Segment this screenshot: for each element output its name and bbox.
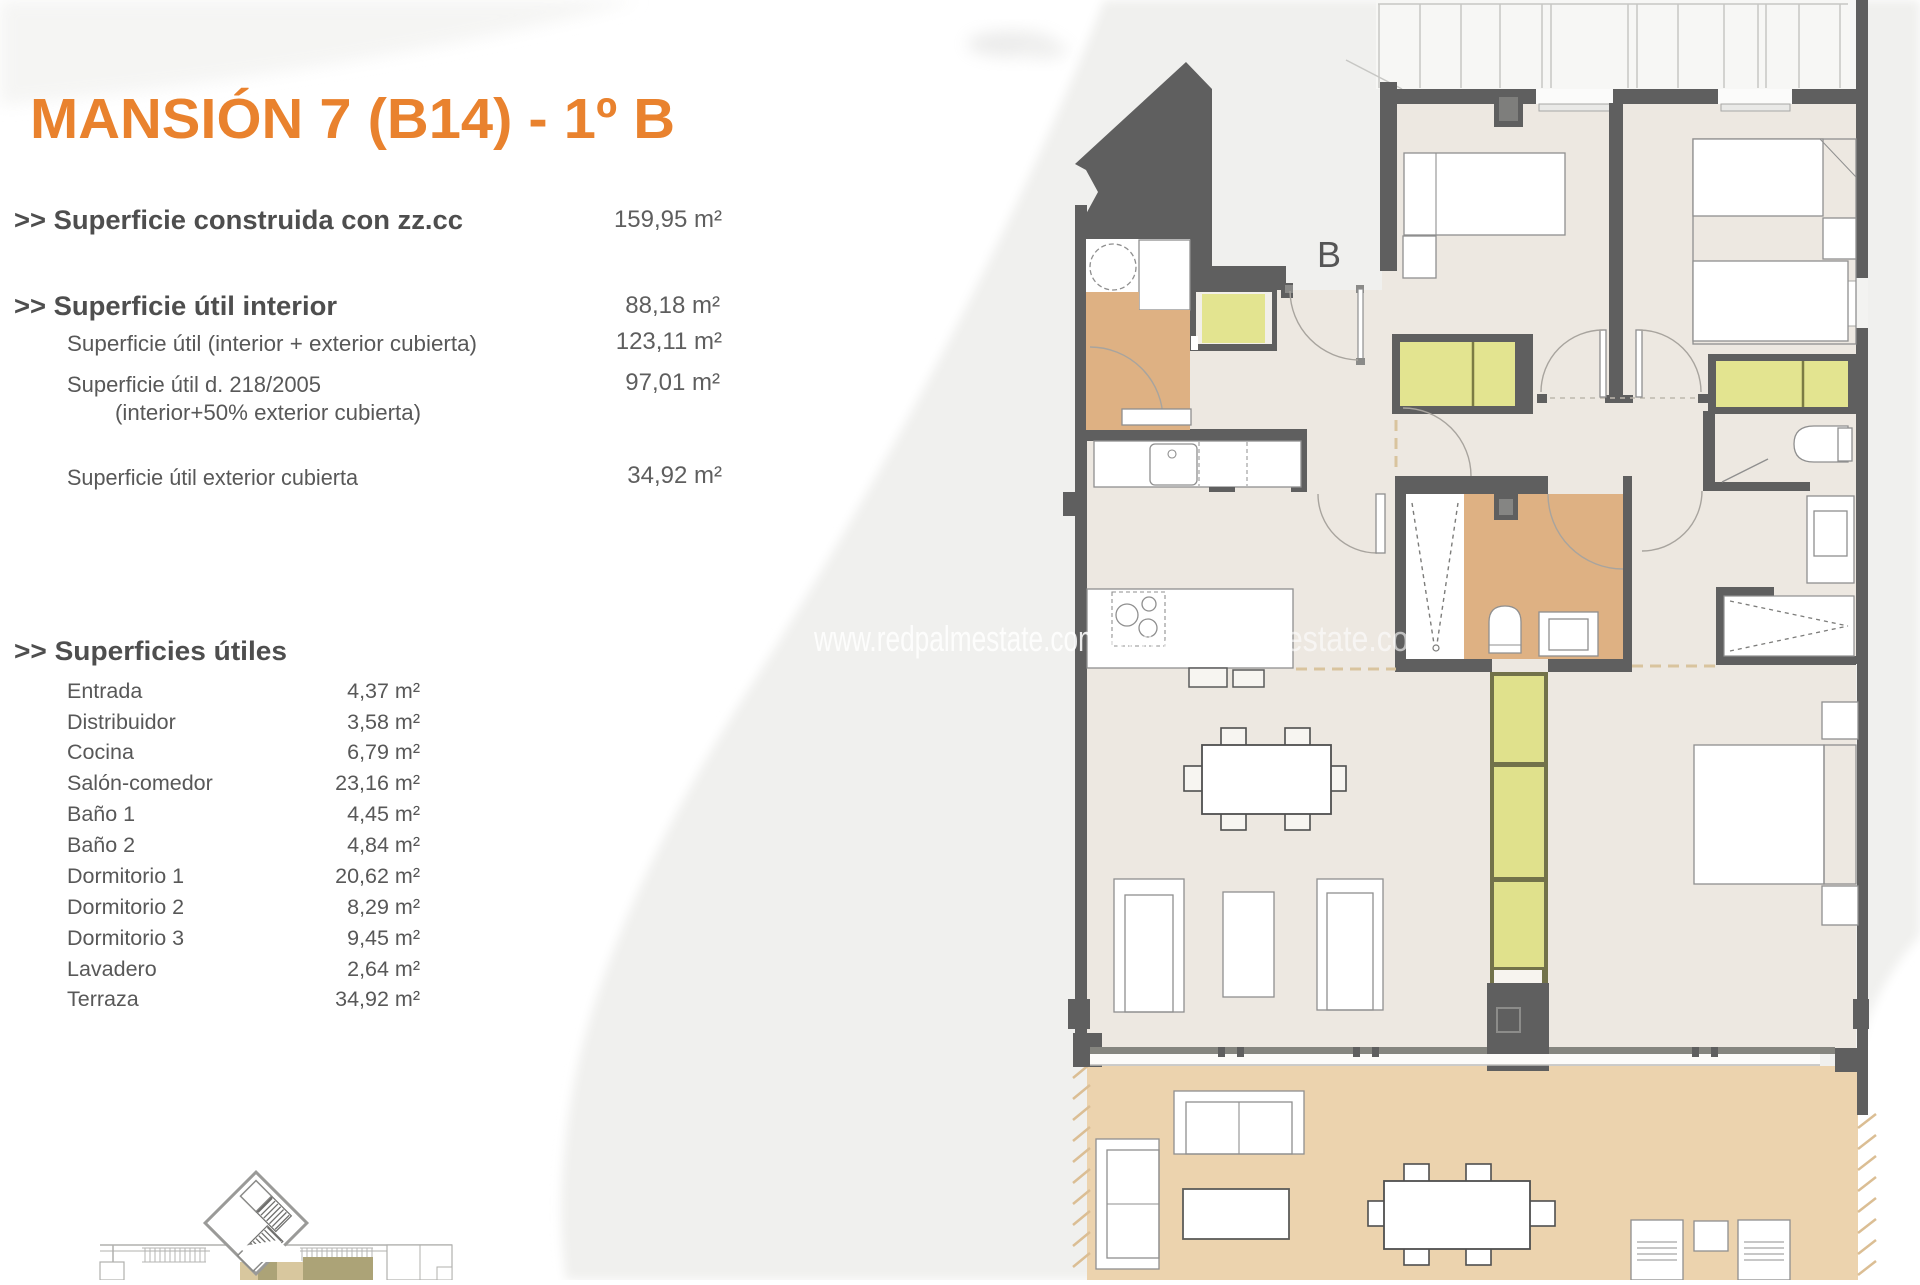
svg-text:123,11 m²: 123,11 m² bbox=[616, 328, 722, 355]
svg-text:Baño 2: Baño 2 bbox=[67, 833, 135, 857]
svg-text:Dormitorio 3: Dormitorio 3 bbox=[67, 926, 184, 950]
svg-text:9,45 m²: 9,45 m² bbox=[347, 926, 420, 950]
svg-text:Salón-comedor: Salón-comedor bbox=[67, 771, 213, 795]
svg-text:23,16 m²: 23,16 m² bbox=[335, 771, 420, 795]
svg-text:6,79 m²: 6,79 m² bbox=[347, 740, 420, 764]
svg-text:34,92 m²: 34,92 m² bbox=[627, 462, 722, 489]
svg-text:Terraza: Terraza bbox=[67, 987, 139, 1011]
svg-text:Cocina: Cocina bbox=[67, 740, 134, 764]
svg-text:4,45 m²: 4,45 m² bbox=[347, 802, 420, 826]
svg-text:20,62 m²: 20,62 m² bbox=[335, 864, 420, 888]
svg-text:34,92 m²: 34,92 m² bbox=[335, 987, 420, 1011]
svg-text:Lavadero: Lavadero bbox=[67, 957, 157, 981]
svg-text:Dormitorio 1: Dormitorio 1 bbox=[67, 864, 184, 888]
svg-text:8,29 m²: 8,29 m² bbox=[347, 895, 420, 919]
svg-text:Superficie útil (interior + ex: Superficie útil (interior + exterior cub… bbox=[67, 331, 477, 356]
svg-text:B: B bbox=[1317, 234, 1341, 275]
svg-text:Dormitorio 2: Dormitorio 2 bbox=[67, 895, 184, 919]
svg-text:Superficie útil exterior cubie: Superficie útil exterior cubierta bbox=[67, 465, 359, 490]
svg-text:88,18 m²: 88,18 m² bbox=[625, 292, 720, 319]
svg-text:Entrada: Entrada bbox=[67, 679, 142, 703]
svg-text:>> Superficie construida con z: >> Superficie construida con zz.cc bbox=[14, 205, 463, 235]
svg-text:www.redpalmestate.com: www.redpalmestate.com bbox=[813, 618, 1100, 659]
svg-text:2,64 m²: 2,64 m² bbox=[347, 957, 420, 981]
svg-text:MANSIÓN 7 (B14) - 1º B: MANSIÓN 7 (B14) - 1º B bbox=[30, 87, 675, 151]
svg-text:3,58 m²: 3,58 m² bbox=[347, 710, 420, 734]
svg-text:>> Superficies útiles: >> Superficies útiles bbox=[14, 636, 287, 666]
svg-text:Distribuidor: Distribuidor bbox=[67, 710, 176, 734]
svg-text:4,37 m²: 4,37 m² bbox=[347, 679, 420, 703]
svg-text:Superficie útil d. 218/2005: Superficie útil d. 218/2005 bbox=[67, 372, 321, 397]
svg-text:>> Superficie útil interior: >> Superficie útil interior bbox=[14, 291, 337, 321]
svg-text:Baño 1: Baño 1 bbox=[67, 802, 135, 826]
svg-text:www.redpalmestate.com: www.redpalmestate.com bbox=[1103, 618, 1434, 659]
svg-text:159,95 m²: 159,95 m² bbox=[614, 206, 722, 233]
svg-text:97,01 m²: 97,01 m² bbox=[625, 369, 720, 396]
svg-text:(interior+50% exterior cubiert: (interior+50% exterior cubierta) bbox=[115, 400, 421, 425]
svg-text:4,84 m²: 4,84 m² bbox=[347, 833, 420, 857]
